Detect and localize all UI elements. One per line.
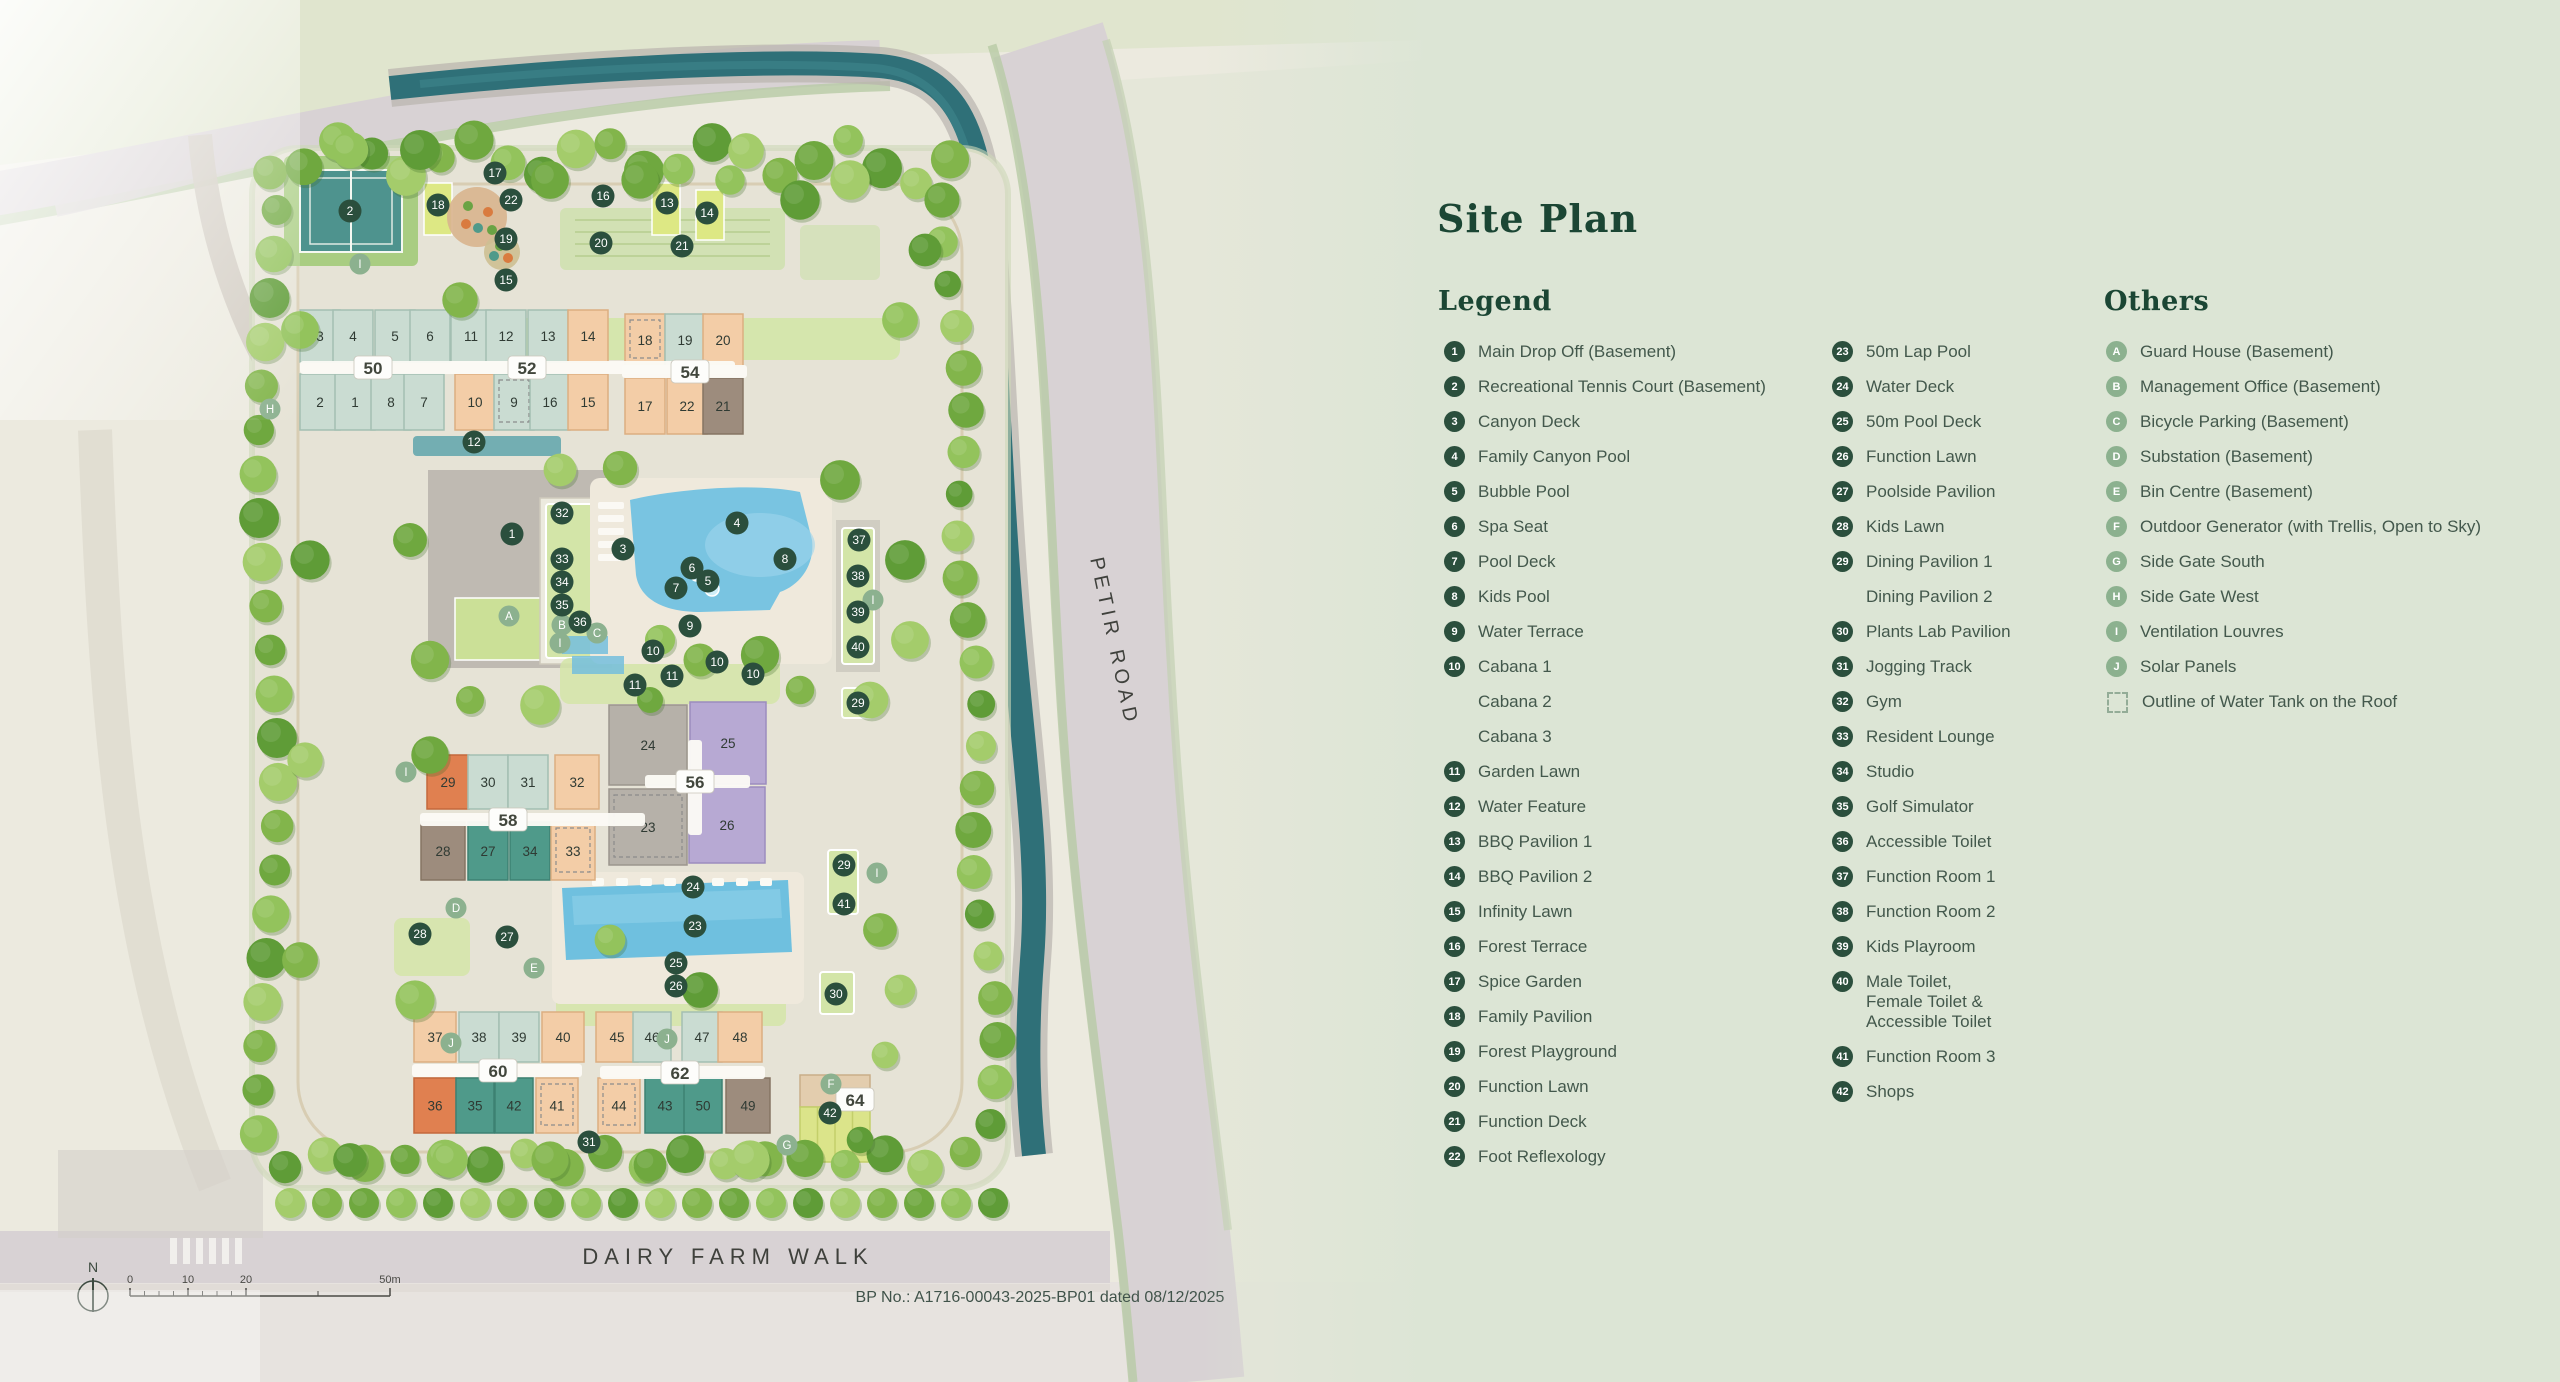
building-unit: 7 (404, 374, 444, 430)
legend-item: 24Water Deck (1832, 376, 2102, 397)
number-marker: 11 (624, 674, 647, 697)
legend-item: 29Dining Pavilion 1 (1832, 551, 2102, 572)
svg-text:33: 33 (565, 844, 580, 859)
svg-text:I: I (404, 767, 407, 779)
svg-text:E: E (530, 963, 538, 975)
legend-item-label: Bicycle Parking (Basement) (2140, 411, 2349, 432)
legend-item: IVentilation Louvres (2106, 621, 2546, 642)
svg-text:20: 20 (715, 333, 730, 348)
building-unit: 22 (667, 378, 707, 434)
legend-item-label: Kids Lawn (1866, 516, 1944, 537)
legend-item-label: Water Deck (1866, 376, 1954, 397)
legend-badge-blank (1444, 726, 1465, 747)
svg-text:39: 39 (851, 605, 865, 619)
legend-item: JSolar Panels (2106, 656, 2546, 677)
number-marker: 2 (339, 200, 362, 223)
legend-badge: D (2106, 446, 2127, 467)
legend-badge: A (2106, 341, 2127, 362)
svg-text:44: 44 (611, 1099, 627, 1114)
legend-item-label: Cabana 3 (1478, 726, 1552, 747)
number-marker: 39 (847, 601, 870, 624)
svg-text:42: 42 (823, 1106, 837, 1120)
svg-text:4: 4 (349, 329, 357, 344)
legend-badge: 36 (1832, 831, 1853, 852)
number-marker: 9 (679, 615, 702, 638)
svg-text:I: I (358, 259, 361, 271)
legend-item: EBin Centre (Basement) (2106, 481, 2546, 502)
svg-text:21: 21 (715, 399, 730, 414)
svg-text:56: 56 (686, 773, 705, 792)
legend-item: 2Recreational Tennis Court (Basement) (1444, 376, 1824, 397)
svg-text:12: 12 (498, 329, 513, 344)
svg-text:34: 34 (555, 575, 569, 589)
number-marker: 3 (612, 538, 635, 561)
legend-item: 1Main Drop Off (Basement) (1444, 341, 1824, 362)
legend-item-label: Outline of Water Tank on the Roof (2142, 691, 2397, 712)
legend-badge: 5 (1444, 481, 1465, 502)
legend-item: 6Spa Seat (1444, 516, 1824, 537)
legend-item: 21Function Deck (1444, 1111, 1824, 1132)
svg-text:1: 1 (509, 527, 516, 541)
number-marker: 10 (706, 651, 729, 674)
legend-column-2: 2350m Lap Pool24Water Deck2550m Pool Dec… (1832, 341, 2102, 1116)
svg-text:52: 52 (518, 359, 537, 378)
number-marker: 23 (684, 915, 707, 938)
svg-text:24: 24 (640, 738, 656, 753)
building-unit: 15 (568, 374, 608, 430)
svg-text:1: 1 (351, 395, 359, 410)
svg-text:38: 38 (851, 569, 865, 583)
svg-text:16: 16 (542, 395, 557, 410)
legend-item-label: Function Room 2 (1866, 901, 1995, 922)
legend-item-label: Forest Terrace (1478, 936, 1587, 957)
legend-item-label: Water Feature (1478, 796, 1586, 817)
legend-item-label: Solar Panels (2140, 656, 2236, 677)
building-unit: 1 (335, 374, 375, 430)
svg-text:26: 26 (719, 818, 734, 833)
legend-badge: 15 (1444, 901, 1465, 922)
building-unit: 21 (703, 378, 743, 434)
legend-badge: 37 (1832, 866, 1853, 887)
legend-badge: 8 (1444, 586, 1465, 607)
svg-text:29: 29 (851, 696, 865, 710)
legend-item-label: Kids Pool (1478, 586, 1550, 607)
svg-text:32: 32 (569, 775, 584, 790)
number-marker: 12 (463, 431, 486, 454)
legend-item-label: Function Lawn (1478, 1076, 1589, 1097)
building-unit: 44 (598, 1078, 640, 1133)
legend-badge: 19 (1444, 1041, 1465, 1062)
svg-text:2: 2 (347, 204, 354, 218)
svg-text:8: 8 (387, 395, 395, 410)
svg-text:40: 40 (555, 1030, 570, 1045)
block-label: 56 (676, 770, 714, 793)
svg-text:24: 24 (686, 880, 700, 894)
legend-badge: H (2106, 586, 2127, 607)
svg-text:4: 4 (734, 516, 741, 530)
building-unit: 30 (468, 755, 508, 809)
legend-badge: 31 (1832, 656, 1853, 677)
building-unit: 35 (456, 1078, 494, 1133)
legend-item-label: Gym (1866, 691, 1902, 712)
svg-text:29: 29 (440, 775, 455, 790)
svg-text:5: 5 (391, 329, 399, 344)
legend-item-label: BBQ Pavilion 1 (1478, 831, 1592, 852)
svg-text:16: 16 (596, 189, 610, 203)
building-unit: 39 (499, 1012, 539, 1062)
legend-column-1: 1Main Drop Off (Basement)2Recreational T… (1444, 341, 1824, 1181)
legend-item: 4Family Canyon Pool (1444, 446, 1824, 467)
legend-badge: 3 (1444, 411, 1465, 432)
svg-text:41: 41 (837, 897, 851, 911)
svg-text:60: 60 (489, 1062, 508, 1081)
svg-text:30: 30 (480, 775, 495, 790)
svg-text:5: 5 (705, 574, 712, 588)
legend-item-label: BBQ Pavilion 2 (1478, 866, 1592, 887)
legend-badge: 20 (1444, 1076, 1465, 1097)
legend-badge: 10 (1444, 656, 1465, 677)
number-marker: 31 (578, 1131, 601, 1154)
legend-item-label: Water Terrace (1478, 621, 1584, 642)
svg-text:6: 6 (426, 329, 434, 344)
legend-item: HSide Gate West (2106, 586, 2546, 607)
letter-marker: D (446, 898, 467, 919)
legend-badge: 16 (1444, 936, 1465, 957)
legend-badge: G (2106, 551, 2127, 572)
svg-text:20: 20 (240, 1274, 252, 1286)
legend-item: 33Resident Lounge (1832, 726, 2102, 747)
legend-item: 8Kids Pool (1444, 586, 1824, 607)
legend-item: 7Pool Deck (1444, 551, 1824, 572)
legend-item-label: Garden Lawn (1478, 761, 1580, 782)
number-marker: 33 (551, 548, 574, 571)
letter-marker: I (867, 863, 888, 884)
legend-item: 26Function Lawn (1832, 446, 2102, 467)
letter-marker: A (499, 606, 520, 627)
legend-item: 32Gym (1832, 691, 2102, 712)
svg-text:10: 10 (467, 395, 482, 410)
svg-text:29: 29 (837, 858, 851, 872)
letter-marker: J (441, 1033, 462, 1054)
legend-item-label: Jogging Track (1866, 656, 1972, 677)
number-marker: 27 (496, 926, 519, 949)
legend-item-label: Guard House (Basement) (2140, 341, 2334, 362)
legend-badge: 30 (1832, 621, 1853, 642)
legend-badge: 18 (1444, 1006, 1465, 1027)
legend-badge: 11 (1444, 761, 1465, 782)
legend-item: 2350m Lap Pool (1832, 341, 2102, 362)
legend-badge: 12 (1444, 796, 1465, 817)
building-unit: 40 (542, 1012, 584, 1062)
legend-item: GSide Gate South (2106, 551, 2546, 572)
svg-text:F: F (827, 1079, 834, 1091)
svg-text:45: 45 (609, 1030, 624, 1045)
building-unit: 24 (609, 705, 687, 785)
svg-text:49: 49 (740, 1099, 755, 1114)
svg-text:19: 19 (499, 232, 513, 246)
number-marker: 8 (774, 548, 797, 571)
number-marker: 19 (495, 228, 518, 251)
number-marker: 14 (696, 202, 719, 225)
svg-text:58: 58 (499, 811, 518, 830)
svg-text:11: 11 (666, 669, 679, 683)
legend-badge: 22 (1444, 1146, 1465, 1167)
legend-badge: 2 (1444, 376, 1465, 397)
others-heading: Others (2104, 286, 2209, 317)
number-marker: 35 (551, 594, 574, 617)
legend-item-label: Accessible Toilet (1866, 831, 1991, 852)
legend-item-label: Recreational Tennis Court (Basement) (1478, 376, 1766, 397)
legend-item: 40Male Toilet, Female Toilet & Accessibl… (1832, 971, 2102, 1032)
legend-item: AGuard House (Basement) (2106, 341, 2546, 362)
svg-text:28: 28 (435, 844, 450, 859)
svg-text:38: 38 (471, 1030, 486, 1045)
legend-badge: 23 (1832, 341, 1853, 362)
block-label: 50 (354, 356, 392, 379)
svg-text:N: N (88, 1259, 98, 1275)
svg-text:B: B (558, 620, 566, 632)
number-marker: 32 (551, 502, 574, 525)
building-unit: 45 (596, 1012, 638, 1062)
svg-text:18: 18 (637, 333, 652, 348)
svg-text:50: 50 (695, 1099, 710, 1114)
legend-item: DSubstation (Basement) (2106, 446, 2546, 467)
svg-text:14: 14 (700, 206, 714, 220)
building-unit: 48 (718, 1012, 762, 1062)
legend-item-label: Family Pavilion (1478, 1006, 1592, 1027)
number-marker: 41 (833, 893, 856, 916)
legend-item-label: Outdoor Generator (with Trellis, Open to… (2140, 516, 2481, 537)
legend-badge: 25 (1832, 411, 1853, 432)
letter-marker: I (350, 254, 371, 275)
svg-text:9: 9 (687, 619, 694, 633)
building-unit: 4 (333, 310, 373, 362)
building-unit: 43 (645, 1078, 685, 1133)
legend-badge-blank (1832, 586, 1853, 607)
legend-item-label: Plants Lab Pavilion (1866, 621, 2011, 642)
legend-item-label: 50m Lap Pool (1866, 341, 1971, 362)
svg-text:19: 19 (677, 333, 692, 348)
legend-item-label: Studio (1866, 761, 1914, 782)
legend-item-label: Management Office (Basement) (2140, 376, 2381, 397)
building-unit: 38 (459, 1012, 499, 1062)
svg-text:34: 34 (522, 844, 538, 859)
svg-text:31: 31 (582, 1135, 596, 1149)
legend-item-label: Poolside Pavilion (1866, 481, 1995, 502)
legend-badge: 1 (1444, 341, 1465, 362)
building-unit: 2 (300, 374, 340, 430)
building-unit: 13 (528, 310, 568, 362)
svg-text:13: 13 (660, 196, 674, 210)
svg-text:10: 10 (710, 655, 724, 669)
svg-text:22: 22 (504, 193, 518, 207)
svg-text:36: 36 (427, 1099, 442, 1114)
letter-marker: E (524, 958, 545, 979)
number-marker: 37 (848, 529, 871, 552)
legend-badge: 41 (1832, 1046, 1853, 1067)
svg-text:26: 26 (669, 979, 683, 993)
number-marker: 30 (825, 983, 848, 1006)
legend-item: 30Plants Lab Pavilion (1832, 621, 2102, 642)
legend-badge: E (2106, 481, 2127, 502)
svg-text:40: 40 (851, 640, 865, 654)
svg-text:62: 62 (671, 1064, 690, 1083)
svg-text:I: I (871, 595, 874, 607)
letter-marker: J (657, 1029, 678, 1050)
building-unit: 49 (726, 1078, 770, 1133)
legend-badge: 27 (1832, 481, 1853, 502)
number-marker: 40 (847, 636, 870, 659)
block-label: 62 (661, 1061, 699, 1084)
number-marker: 10 (742, 663, 765, 686)
building-unit: 32 (555, 755, 599, 809)
legend-item-label: Dining Pavilion 1 (1866, 551, 1993, 572)
number-marker: 21 (671, 235, 694, 258)
legend-item: Dining Pavilion 2 (1832, 586, 2102, 607)
svg-text:7: 7 (420, 395, 428, 410)
legend-badge: 17 (1444, 971, 1465, 992)
legend-badge-blank (1444, 691, 1465, 712)
legend-item: 3Canyon Deck (1444, 411, 1824, 432)
legend-badge: 6 (1444, 516, 1465, 537)
building-unit: 10 (455, 374, 495, 430)
legend-badge: 33 (1832, 726, 1853, 747)
svg-text:37: 37 (427, 1030, 442, 1045)
legend-badge: 40 (1832, 971, 1853, 992)
legend-badge: 26 (1832, 446, 1853, 467)
letter-marker: G (777, 1135, 798, 1156)
number-marker: 22 (500, 189, 523, 212)
dairy-farm-walk-label: DAIRY FARM WALK (582, 1244, 873, 1269)
legend-item: 34Studio (1832, 761, 2102, 782)
building-unit: 47 (682, 1012, 722, 1062)
legend-item-label: Spice Garden (1478, 971, 1582, 992)
svg-text:41: 41 (549, 1099, 564, 1114)
legend-item-label: Function Room 1 (1866, 866, 1995, 887)
legend-badge: 35 (1832, 796, 1853, 817)
building-unit: 20 (703, 314, 743, 366)
svg-text:43: 43 (657, 1099, 672, 1114)
number-marker: 1 (501, 523, 524, 546)
svg-text:10: 10 (182, 1274, 194, 1286)
legend-item: 39Kids Playroom (1832, 936, 2102, 957)
svg-text:J: J (448, 1038, 454, 1050)
legend-item-label: Function Lawn (1866, 446, 1977, 467)
legend-item: 41Function Room 3 (1832, 1046, 2102, 1067)
legend-item-label: Resident Lounge (1866, 726, 1995, 747)
svg-text:25: 25 (669, 956, 683, 970)
svg-text:14: 14 (580, 329, 596, 344)
number-marker: 18 (427, 194, 450, 217)
legend-item: 2550m Pool Deck (1832, 411, 2102, 432)
svg-text:3: 3 (620, 542, 627, 556)
block-label: 52 (508, 356, 546, 379)
block-label: 60 (479, 1059, 517, 1082)
svg-text:23: 23 (688, 919, 702, 933)
svg-text:11: 11 (464, 329, 478, 344)
svg-text:10: 10 (646, 644, 660, 658)
building-unit: 23 (609, 789, 687, 865)
svg-text:36: 36 (573, 615, 587, 629)
building-unit: 17 (625, 378, 665, 434)
number-marker: 15 (495, 269, 518, 292)
legend-item: 9Water Terrace (1444, 621, 1824, 642)
svg-text:6: 6 (689, 561, 696, 575)
legend-item: 42Shops (1832, 1081, 2102, 1102)
legend-item-label: Ventilation Louvres (2140, 621, 2284, 642)
svg-text:12: 12 (467, 435, 481, 449)
legend-badge: F (2106, 516, 2127, 537)
legend-badge: C (2106, 411, 2127, 432)
number-marker: 29 (847, 692, 870, 715)
svg-text:35: 35 (467, 1099, 482, 1114)
legend-item-label: Bin Centre (Basement) (2140, 481, 2313, 502)
legend-item: 15Infinity Lawn (1444, 901, 1824, 922)
legend-item-label: Main Drop Off (Basement) (1478, 341, 1676, 362)
svg-text:64: 64 (846, 1091, 865, 1110)
building-unit: 50 (684, 1078, 722, 1133)
svg-text:10: 10 (746, 667, 760, 681)
legend-item-label: Function Room 3 (1866, 1046, 1995, 1067)
building-unit: 9 (494, 374, 534, 430)
site-plan-map: 3456218711121314109161518192017222129303… (0, 0, 1430, 1382)
legend-item: 37Function Room 1 (1832, 866, 2102, 887)
svg-text:32: 32 (555, 506, 569, 520)
building-unit: 31 (508, 755, 548, 809)
legend-item-label: Side Gate South (2140, 551, 2265, 572)
legend-item: 27Poolside Pavilion (1832, 481, 2102, 502)
legend-item-label: Pool Deck (1478, 551, 1555, 572)
legend-item: 18Family Pavilion (1444, 1006, 1824, 1027)
svg-text:18: 18 (431, 198, 445, 212)
number-marker: 38 (847, 565, 870, 588)
legend-item: 36Accessible Toilet (1832, 831, 2102, 852)
legend-item: 17Spice Garden (1444, 971, 1824, 992)
legend-item-label: Golf Simulator (1866, 796, 1974, 817)
page-title: Site Plan (1437, 196, 1638, 241)
building-unit: 5 (375, 310, 415, 362)
legend-badge: 14 (1444, 866, 1465, 887)
building-unit: 16 (530, 374, 570, 430)
legend-item-label: Substation (Basement) (2140, 446, 2313, 467)
number-marker: 4 (726, 512, 749, 535)
svg-text:27: 27 (500, 930, 514, 944)
legend-item: BManagement Office (Basement) (2106, 376, 2546, 397)
number-marker: 5 (697, 570, 720, 593)
legend-item-label: Cabana 2 (1478, 691, 1552, 712)
legend-heading: Legend (1438, 286, 1552, 317)
number-marker: 11 (661, 665, 684, 688)
number-marker: 29 (833, 854, 856, 877)
block-label: 58 (489, 808, 527, 831)
legend-item: Outline of Water Tank on the Roof (2106, 691, 2546, 713)
legend-item: 38Function Room 2 (1832, 901, 2102, 922)
legend-badge: 13 (1444, 831, 1465, 852)
legend-badge: 42 (1832, 1081, 1853, 1102)
legend-item-label: Spa Seat (1478, 516, 1548, 537)
legend-item: 20Function Lawn (1444, 1076, 1824, 1097)
svg-text:17: 17 (488, 166, 502, 180)
others-column: AGuard House (Basement)BManagement Offic… (2106, 341, 2546, 727)
legend-badge: B (2106, 376, 2127, 397)
svg-text:31: 31 (520, 775, 535, 790)
legend-item-label: Canyon Deck (1478, 411, 1580, 432)
bp-number-note: BP No.: A1716-00043-2025-BP01 dated 08/1… (856, 1289, 1225, 1306)
svg-text:15: 15 (499, 273, 513, 287)
number-marker: 16 (592, 185, 615, 208)
svg-text:11: 11 (629, 678, 642, 692)
letter-marker: I (550, 633, 571, 654)
